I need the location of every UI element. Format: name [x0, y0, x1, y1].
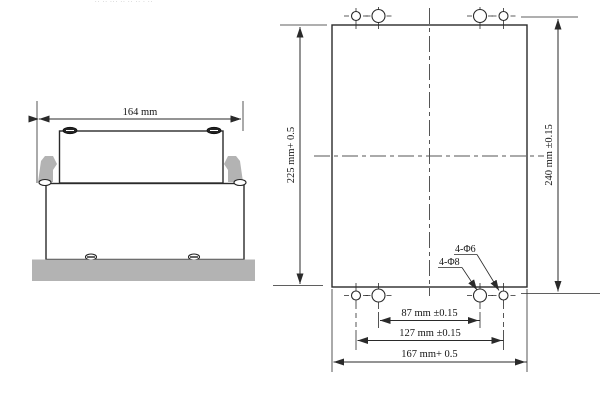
screw-icon — [234, 180, 246, 186]
dim-87: 87 mm ±0.15 — [379, 304, 481, 328]
side-view: 164 mm — [32, 101, 255, 281]
hole-phi6 — [352, 291, 361, 300]
upper-housing — [60, 131, 224, 183]
hole-phi8 — [372, 289, 385, 302]
engineering-drawing-page: ·· ·· ··· ·· ·· ·· · ·· 164 mm — [0, 0, 600, 400]
right-clip — [224, 156, 243, 182]
hole-phi8 — [372, 10, 385, 23]
hole-phi8 — [474, 289, 487, 302]
panel-cutout-view: 4-Φ6 4-Φ8 225 mm+ 0.5 — [273, 7, 600, 372]
phi6-callout-label: 4-Φ6 — [455, 244, 476, 255]
dim-label-225: 225 mm+ 0.5 — [286, 127, 297, 183]
hole-phi6 — [499, 291, 508, 300]
main-body — [46, 184, 244, 260]
phi8-callout-label: 4-Φ8 — [439, 257, 460, 268]
dimension-drawing: 164 mm — [0, 0, 600, 400]
dim-240: 240 mm ±0.15 — [521, 17, 600, 294]
left-clip — [38, 156, 57, 182]
hole-phi8 — [474, 10, 487, 23]
dim-label-87: 87 mm ±0.15 — [401, 308, 457, 319]
hole-phi6 — [352, 12, 361, 21]
dim-225: 225 mm+ 0.5 — [273, 25, 327, 286]
screw-icon — [39, 180, 51, 186]
hole-phi6 — [499, 12, 508, 21]
dim-label-240: 240 mm ±0.15 — [544, 124, 555, 185]
dim-label-127: 127 mm ±0.15 — [399, 328, 460, 339]
dim-label-164: 164 mm — [123, 107, 158, 118]
dim-label-167: 167 mm+ 0.5 — [401, 349, 457, 360]
mounting-plate — [32, 260, 255, 282]
